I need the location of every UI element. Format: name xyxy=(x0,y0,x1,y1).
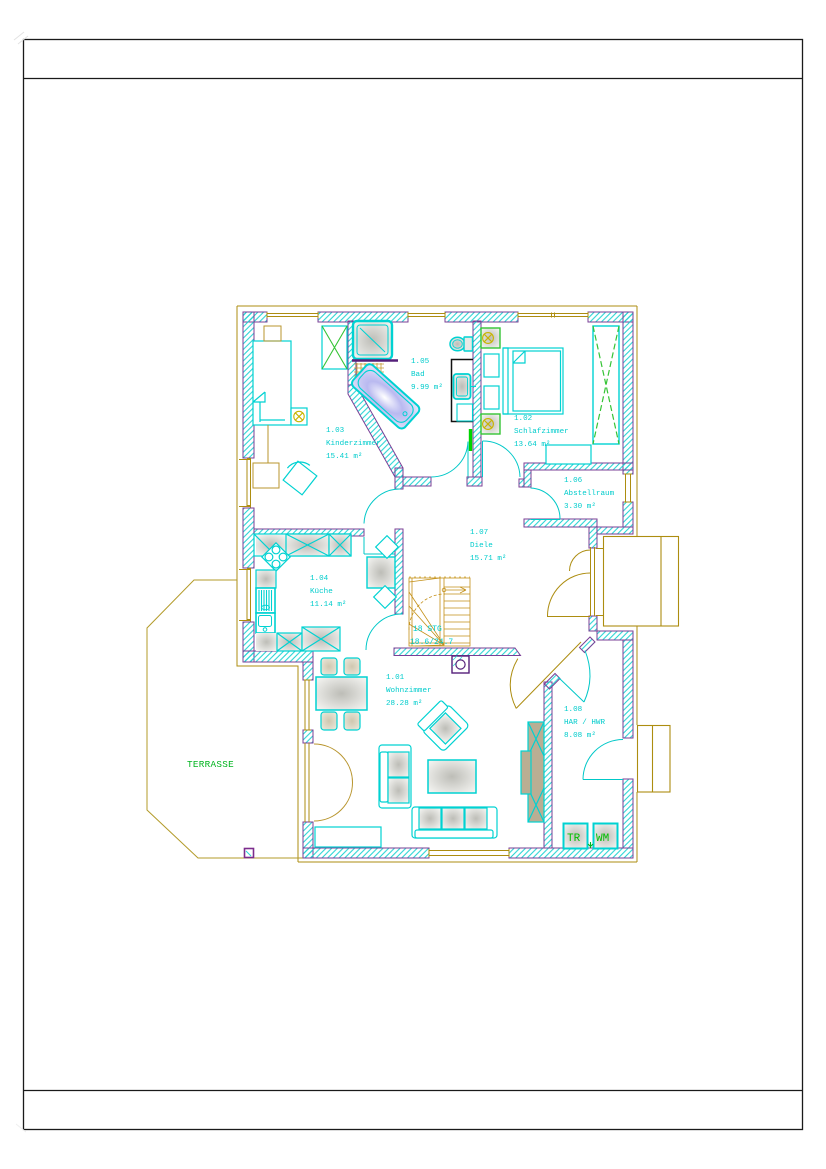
svg-text:1.07: 1.07 xyxy=(470,529,488,537)
svg-text:1.06: 1.06 xyxy=(564,477,583,485)
svg-text:3.30 m²: 3.30 m² xyxy=(564,502,596,511)
svg-text:15.41 m²: 15.41 m² xyxy=(326,452,362,461)
svg-text:8.08 m²: 8.08 m² xyxy=(564,731,596,740)
svg-text:15.71 m²: 15.71 m² xyxy=(470,554,506,563)
svg-text:1.01: 1.01 xyxy=(386,674,405,682)
svg-text:HAR / HWR: HAR / HWR xyxy=(564,719,605,727)
svg-text:11.14 m²: 11.14 m² xyxy=(310,600,346,609)
svg-text:28.28 m²: 28.28 m² xyxy=(386,699,422,708)
svg-text:9.99 m²: 9.99 m² xyxy=(411,383,443,392)
svg-text:1.02: 1.02 xyxy=(514,415,533,423)
svg-text:Diele: Diele xyxy=(470,542,493,550)
svg-text:TR: TR xyxy=(567,833,581,845)
svg-text:Wohnzimmer: Wohnzimmer xyxy=(386,687,432,695)
svg-text:13.64 m²: 13.64 m² xyxy=(514,440,550,449)
svg-text:18 STG: 18 STG xyxy=(413,625,442,634)
svg-text:Bad: Bad xyxy=(411,371,425,379)
svg-text:WM: WM xyxy=(596,833,609,845)
svg-text:Kinderzimmer: Kinderzimmer xyxy=(326,440,381,448)
svg-text:TERRASSE: TERRASSE xyxy=(187,759,234,770)
svg-text:1.04: 1.04 xyxy=(310,575,329,583)
svg-text:Küche: Küche xyxy=(310,588,333,596)
svg-text:Schlafzimmer: Schlafzimmer xyxy=(514,428,569,436)
svg-text:1.03: 1.03 xyxy=(326,427,345,435)
svg-text:1.08: 1.08 xyxy=(564,706,583,714)
svg-text:1.05: 1.05 xyxy=(411,358,430,366)
svg-text:18.6/24.7: 18.6/24.7 xyxy=(410,638,453,647)
svg-text:Abstellraum: Abstellraum xyxy=(564,490,615,498)
